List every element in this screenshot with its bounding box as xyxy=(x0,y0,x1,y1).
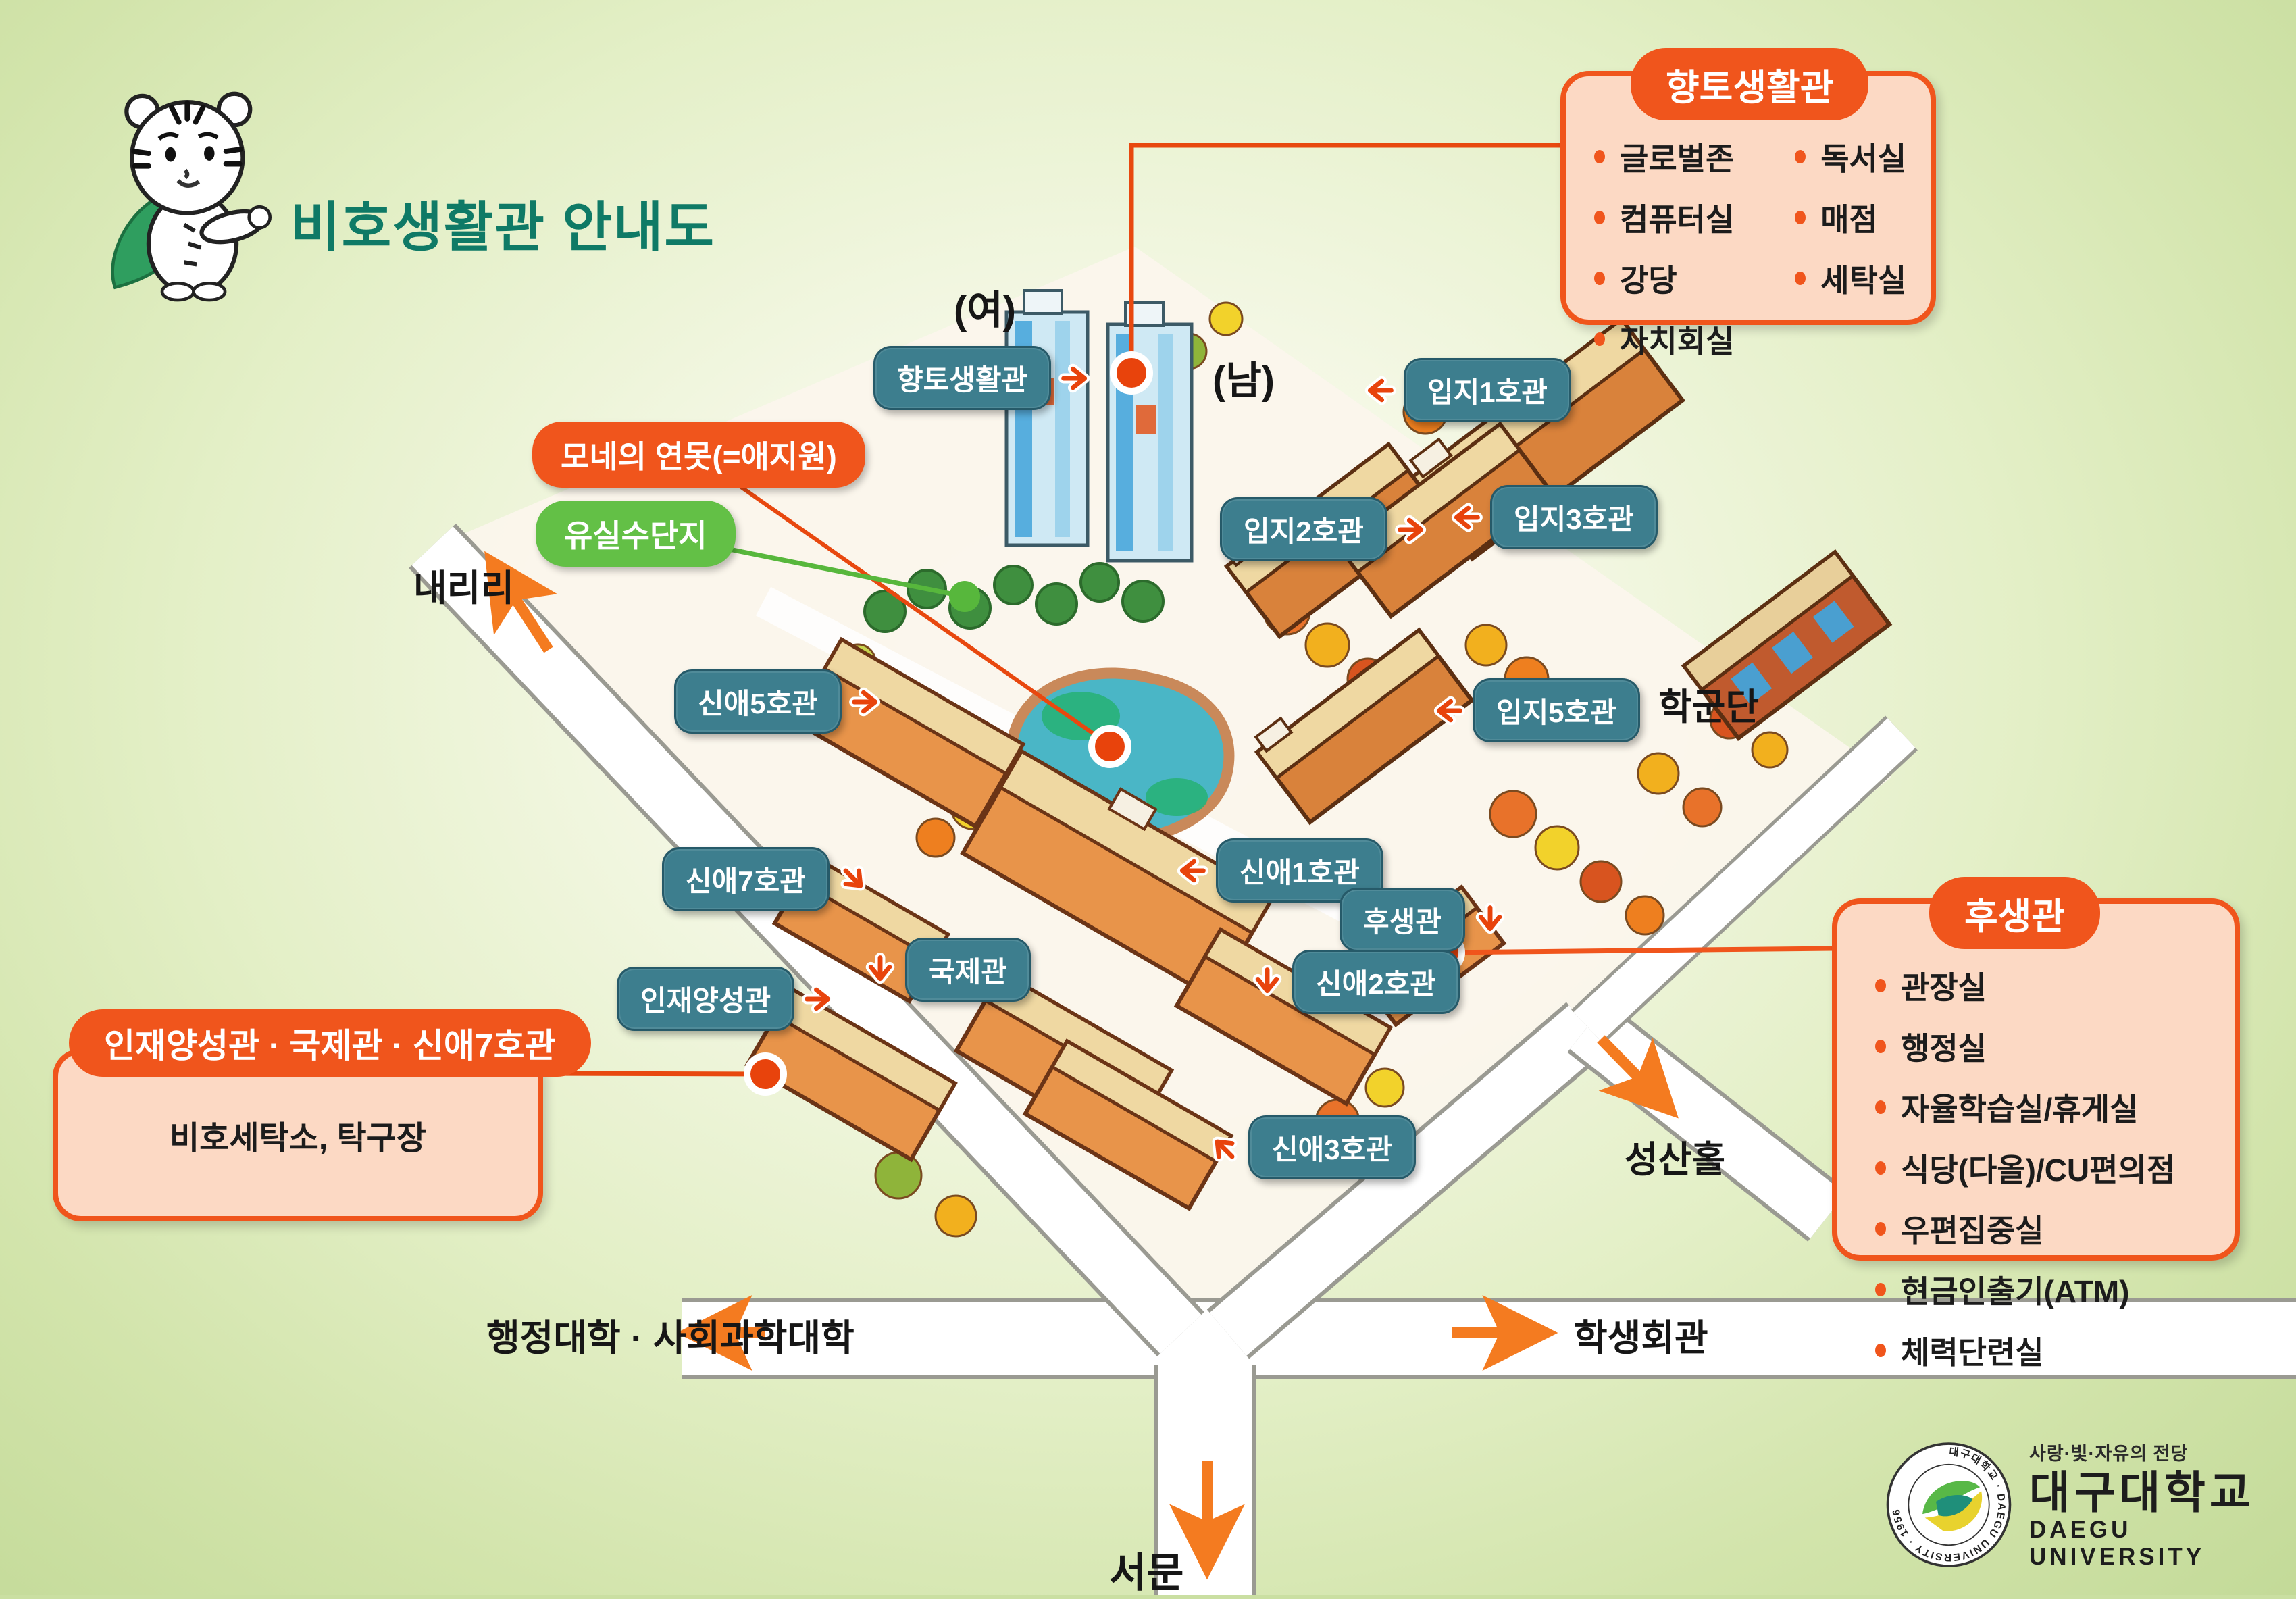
pill-arrow-down-icon xyxy=(1475,905,1506,936)
map-label-student-center: 학생회관 xyxy=(1574,1308,1708,1361)
bullet-icon xyxy=(1875,1344,1886,1357)
pill-arrow-right-icon xyxy=(851,686,882,717)
callout-list-item: 체력단련실 xyxy=(1875,1328,2235,1373)
building-pill-ipji3: 입지3호관 xyxy=(1450,485,1658,549)
callout-hyangto-list-2: 독서실매점세탁실 xyxy=(1795,134,1906,378)
callout-item-text: 강당 xyxy=(1620,256,1677,301)
building-pill-label: 신애7호관 xyxy=(662,847,830,911)
building-pill-label: 국제관 xyxy=(905,938,1031,1002)
bullet-icon xyxy=(1594,211,1605,224)
callout-husaeng-list: 관장실행정실자율학습실/휴게실식당(다올)/CU편의점우편집중실현금인출기(AT… xyxy=(1875,963,2235,1373)
callout-list-item: 식당(다올)/CU편의점 xyxy=(1875,1146,2235,1190)
pill-arrow-down-right-icon xyxy=(832,857,876,901)
building-pill-label: 후생관 xyxy=(1340,888,1465,952)
building-hyangto-nam xyxy=(1108,303,1192,561)
logo-university-ko: 대구대학교 xyxy=(2029,1469,2296,1516)
map-label-seongsan-hall: 성산홀 xyxy=(1625,1130,1725,1183)
callout-injae-body: 비호세탁소, 탁구장 xyxy=(170,1111,426,1159)
bullet-icon xyxy=(1795,272,1806,285)
callout-item-text: 우편집중실 xyxy=(1901,1207,2044,1251)
callout-hyangto: 향토생활관 글로벌존컴퓨터실강당자치회실 독서실매점세탁실 xyxy=(1560,71,1936,325)
building-pill-sinae7: 신애7호관 xyxy=(662,847,870,911)
callout-item-text: 자율학습실/휴게실 xyxy=(1901,1085,2138,1130)
callout-item-text: 체력단련실 xyxy=(1901,1328,2044,1373)
building-pill-label: 신애5호관 xyxy=(674,669,842,734)
pill-arrow-left-icon xyxy=(1432,695,1463,726)
building-pill-hyangto-label: 향토생활관 xyxy=(873,346,1092,410)
callout-item-text: 글로벌존 xyxy=(1620,134,1734,179)
callout-list-item: 강당 xyxy=(1594,256,1734,301)
bullet-icon xyxy=(1594,272,1605,285)
building-pill-ipji1: 입지1호관 xyxy=(1363,358,1571,422)
map-label-naeriri: 내리리 xyxy=(413,558,514,611)
building-pill-husaeng-label: 후생관 xyxy=(1340,888,1506,952)
callout-list-item: 매점 xyxy=(1795,195,1906,240)
logo-university-en: DAEGU UNIVERSITY xyxy=(2029,1517,2296,1571)
bullet-icon xyxy=(1875,1161,1886,1175)
callout-item-text: 독서실 xyxy=(1820,134,1906,179)
building-pill-ipji2: 입지2호관 xyxy=(1220,497,1428,561)
building-pill-gukje: 국제관 xyxy=(865,938,1031,1002)
callout-item-text: 식당(다올)/CU편의점 xyxy=(1901,1146,2175,1190)
page-title: 비호생활관 안내도 xyxy=(290,184,715,262)
callout-item-text: 컴퓨터실 xyxy=(1620,195,1734,240)
building-pill-ipji5: 입지5호관 xyxy=(1432,678,1640,742)
building-pill-label: 입지3호관 xyxy=(1490,485,1658,549)
callout-hyangto-list-1: 글로벌존컴퓨터실강당자치회실 xyxy=(1594,134,1734,378)
special-pill-orchard: 유실수단지 xyxy=(536,501,736,567)
building-hyangto-yeo xyxy=(1006,290,1088,545)
pill-arrow-down-icon xyxy=(1252,967,1283,998)
bullet-icon xyxy=(1594,150,1605,163)
building-pill-sinae2: 신애2호관 xyxy=(1252,950,1460,1014)
callout-list-item: 관장실 xyxy=(1875,963,2235,1008)
callout-injae-title: 인재양성관 · 국제관 · 신애7호관 xyxy=(69,1009,591,1077)
bullet-icon xyxy=(1594,332,1605,346)
callout-item-text: 관장실 xyxy=(1901,963,1987,1008)
pond-island xyxy=(1042,692,1120,740)
callout-item-text: 행정실 xyxy=(1901,1024,1987,1069)
callout-list-item: 행정실 xyxy=(1875,1024,2235,1069)
callout-list-item: 현금인출기(ATM) xyxy=(1875,1267,2235,1312)
bullet-icon xyxy=(1875,979,1886,992)
building-pill-sinae3: 신애3호관 xyxy=(1208,1115,1416,1179)
pill-arrow-right-icon xyxy=(804,984,835,1015)
building-pill-label: 입지2호관 xyxy=(1220,497,1387,561)
callout-item-text: 자치회실 xyxy=(1620,317,1734,361)
callout-item-text: 매점 xyxy=(1820,195,1878,240)
callout-hyangto-title: 향토생활관 xyxy=(1631,48,1868,120)
pill-arrow-left-icon xyxy=(1175,855,1206,886)
university-seal: 대구대학교 · DAEGU UNIVERSITY · 1956 xyxy=(1885,1436,2013,1574)
building-pill-label: 입지5호관 xyxy=(1473,678,1640,742)
bullet-icon xyxy=(1795,150,1806,163)
callout-list-item: 컴퓨터실 xyxy=(1594,195,1734,240)
bullet-icon xyxy=(1875,1040,1886,1053)
pill-arrow-right-icon xyxy=(1061,363,1092,394)
pill-arrow-left-icon xyxy=(1363,375,1394,406)
callout-injae: 인재양성관 · 국제관 · 신애7호관 비호세탁소, 탁구장 xyxy=(53,1048,543,1221)
bullet-icon xyxy=(1875,1283,1886,1296)
building-pill-label: 인재양성관 xyxy=(617,967,794,1031)
pill-arrow-right-icon xyxy=(1397,514,1428,545)
callout-list-item: 독서실 xyxy=(1795,134,1906,179)
building-pill-label: 입지1호관 xyxy=(1404,358,1571,422)
bullet-icon xyxy=(1795,211,1806,224)
callout-list-item: 세탁실 xyxy=(1795,256,1906,301)
callout-list-item: 자치회실 xyxy=(1594,317,1734,361)
university-logo: 대구대학교 · DAEGU UNIVERSITY · 1956 사랑·빛·자유의… xyxy=(1885,1436,2296,1574)
logo-motto: 사랑·빛·자유의 전당 xyxy=(2029,1439,2296,1465)
building-pill-sinae5: 신애5호관 xyxy=(674,669,882,734)
callout-list-item: 글로벌존 xyxy=(1594,134,1734,179)
pill-arrow-down-icon xyxy=(865,955,896,986)
callout-husaeng: 후생관 관장실행정실자율학습실/휴게실식당(다올)/CU편의점우편집중실현금인출… xyxy=(1832,898,2240,1261)
building-pill-label: 신애2호관 xyxy=(1292,950,1460,1014)
bullet-icon xyxy=(1875,1100,1886,1114)
building-pill-injae-label: 인재양성관 xyxy=(617,967,835,1031)
building-pill-label: 신애3호관 xyxy=(1248,1115,1416,1179)
callout-husaeng-title: 후생관 xyxy=(1929,877,2100,949)
tiger-mascot xyxy=(88,68,297,304)
bullet-icon xyxy=(1875,1222,1886,1236)
callout-list-item: 자율학습실/휴게실 xyxy=(1875,1085,2235,1130)
pill-arrow-left-icon xyxy=(1450,502,1481,533)
callout-item-text: 세탁실 xyxy=(1820,256,1906,301)
map-label-yeo: (여) xyxy=(954,278,1016,335)
map-label-colleges: 행정대학 · 사회과학대학 xyxy=(486,1308,854,1361)
callout-list-item: 우편집중실 xyxy=(1875,1207,2235,1251)
map-label-nam: (남) xyxy=(1213,349,1275,405)
special-pill-monet-pond: 모네의 연못(=애지원) xyxy=(532,422,865,488)
pill-arrow-up-left-icon xyxy=(1201,1125,1245,1169)
map-label-seomun: 서문 xyxy=(1109,1540,1183,1599)
campus-map-page: 비호생활관 안내도 향토생활관입지1호관입지2호관입지3호관입지5호관신애5호관… xyxy=(0,0,2296,1595)
building-pill-label: 향토생활관 xyxy=(873,346,1051,410)
callout-item-text: 현금인출기(ATM) xyxy=(1901,1267,2129,1312)
map-label-hakgundan: 학군단 xyxy=(1658,677,1759,730)
